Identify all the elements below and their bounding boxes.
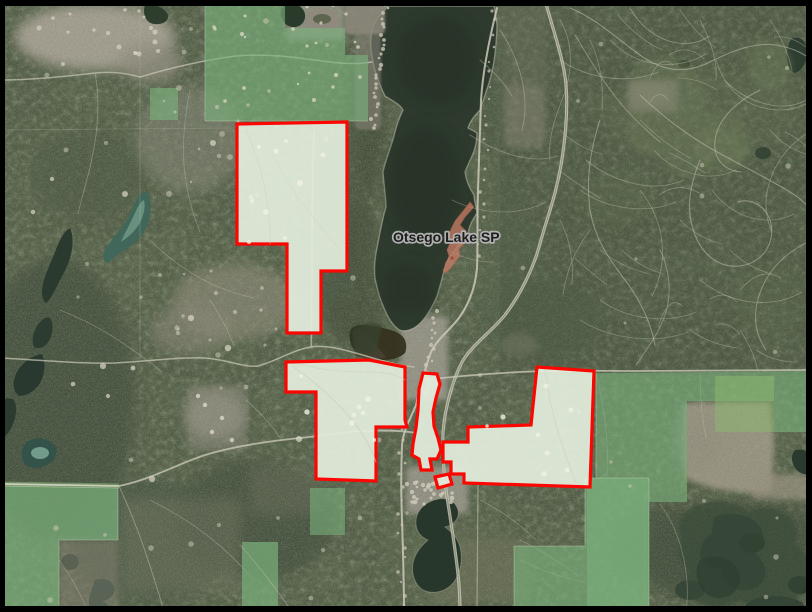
svg-text:Otsego Lake SP: Otsego Lake SP [393,229,500,245]
